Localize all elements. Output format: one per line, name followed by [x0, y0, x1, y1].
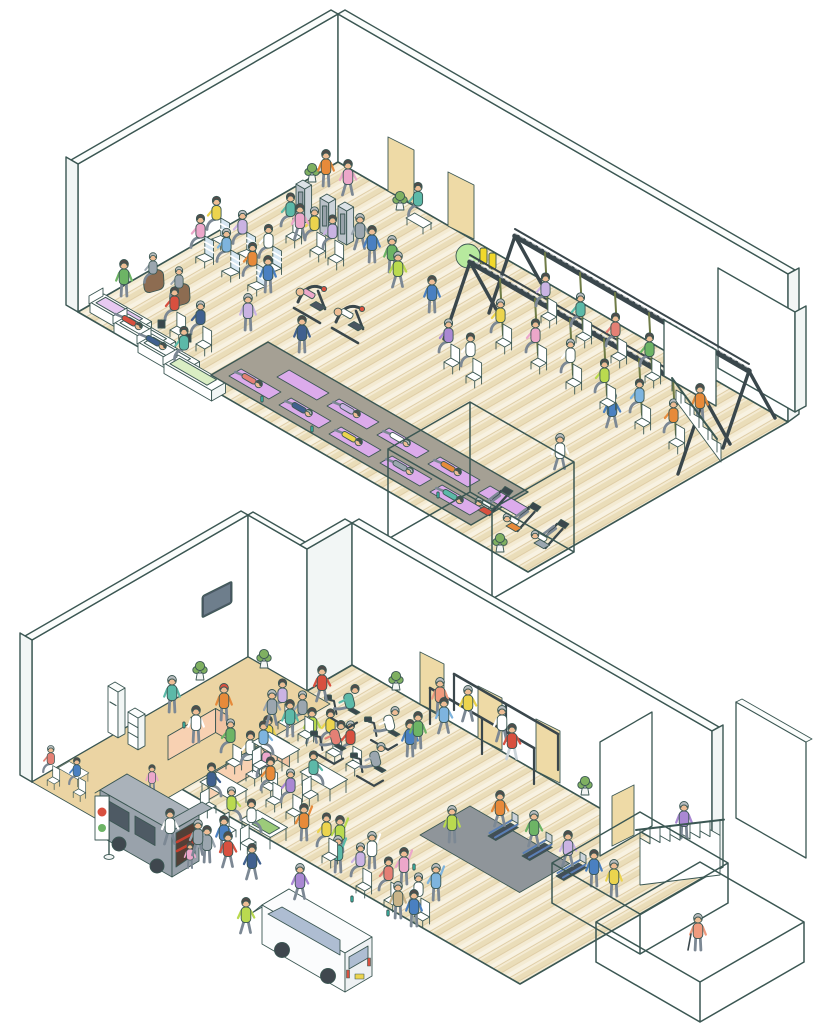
wheel — [112, 837, 126, 851]
banner-art — [98, 824, 106, 832]
isometric-illustration — [0, 0, 839, 1024]
right-wall-cap — [795, 306, 806, 412]
wheel — [150, 859, 164, 873]
person — [238, 898, 254, 934]
wheel — [321, 969, 336, 984]
banner-base — [104, 855, 114, 860]
taillight — [368, 958, 371, 966]
notch-wall — [307, 523, 352, 691]
water-bottle — [351, 896, 353, 902]
wheel — [275, 943, 290, 958]
weight-tower — [338, 202, 354, 245]
lower-floor — [20, 511, 812, 1022]
banner-art — [98, 808, 107, 817]
license-plate — [355, 974, 364, 979]
banner-flag — [95, 796, 109, 840]
water-bottle — [437, 492, 439, 498]
water-bottle — [413, 864, 415, 870]
minivan — [252, 889, 372, 992]
cane-walker — [690, 914, 706, 951]
cane — [688, 934, 691, 950]
shelf-cabinet — [128, 708, 145, 750]
water-bottle — [387, 910, 389, 916]
artwork — [20, 10, 812, 1022]
door — [612, 785, 634, 846]
person — [244, 844, 260, 880]
row-machine — [158, 320, 165, 328]
fridge — [108, 682, 125, 738]
stair-wall-slab — [736, 702, 806, 858]
taillight — [347, 970, 350, 978]
wall-end-cap — [20, 633, 32, 782]
water-bottle — [261, 396, 263, 402]
water-bottle — [311, 426, 313, 432]
upper-floor — [66, 10, 806, 599]
bottle — [183, 722, 185, 728]
wall-end-cap — [66, 157, 78, 312]
